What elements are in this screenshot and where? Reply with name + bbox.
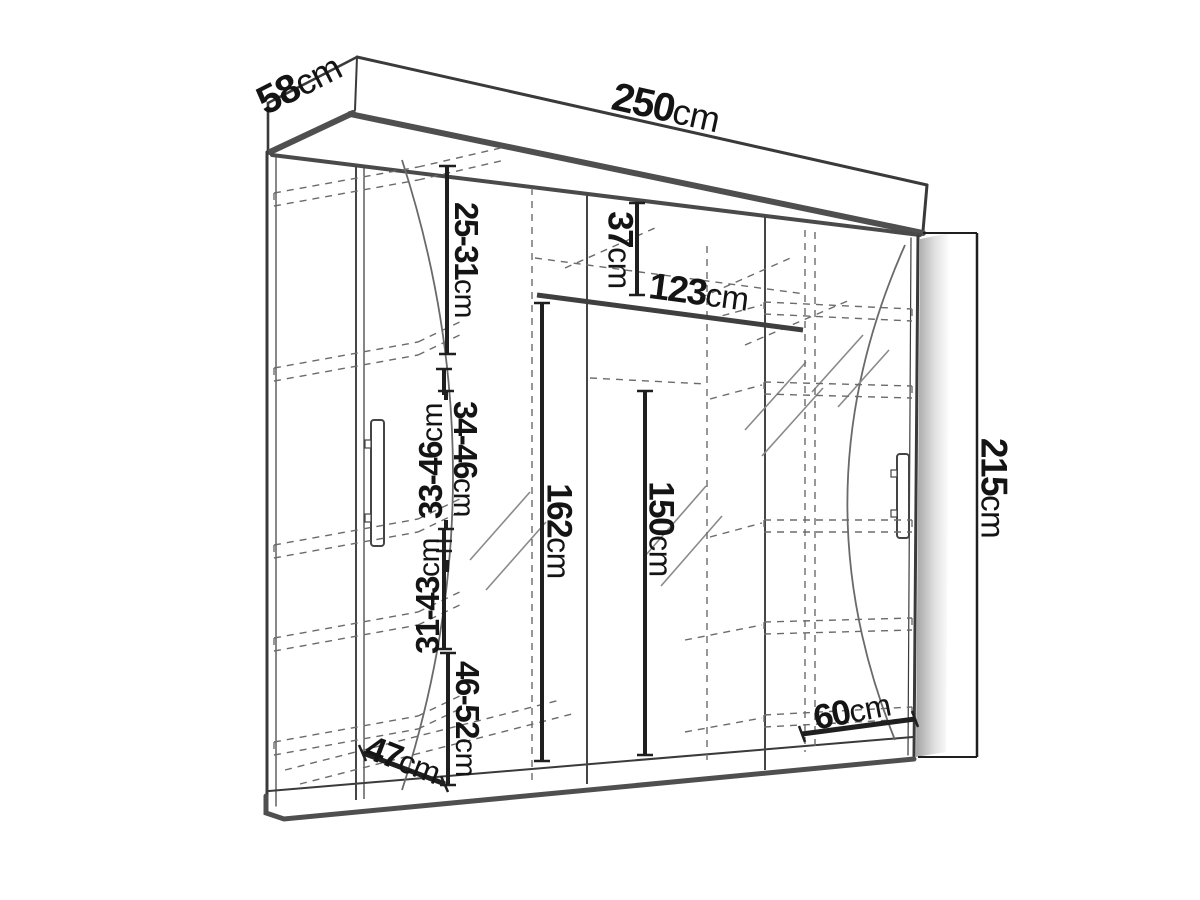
left-door-handle [371, 420, 384, 546]
crown-outline [268, 57, 927, 233]
dimension-lines [359, 165, 977, 792]
interior-dashed [274, 147, 912, 784]
wardrobe-line-drawing [0, 0, 1200, 900]
door-divisions [356, 166, 765, 800]
door-mirror-curves [402, 160, 905, 790]
mirror-hatching [470, 335, 889, 590]
side-panel-shade [916, 233, 950, 757]
wardrobe-diagram: 58cm 250cm 215cm 25-31cm 33-46cm 34-46cm… [0, 0, 1200, 900]
right-door-handle [897, 454, 909, 538]
